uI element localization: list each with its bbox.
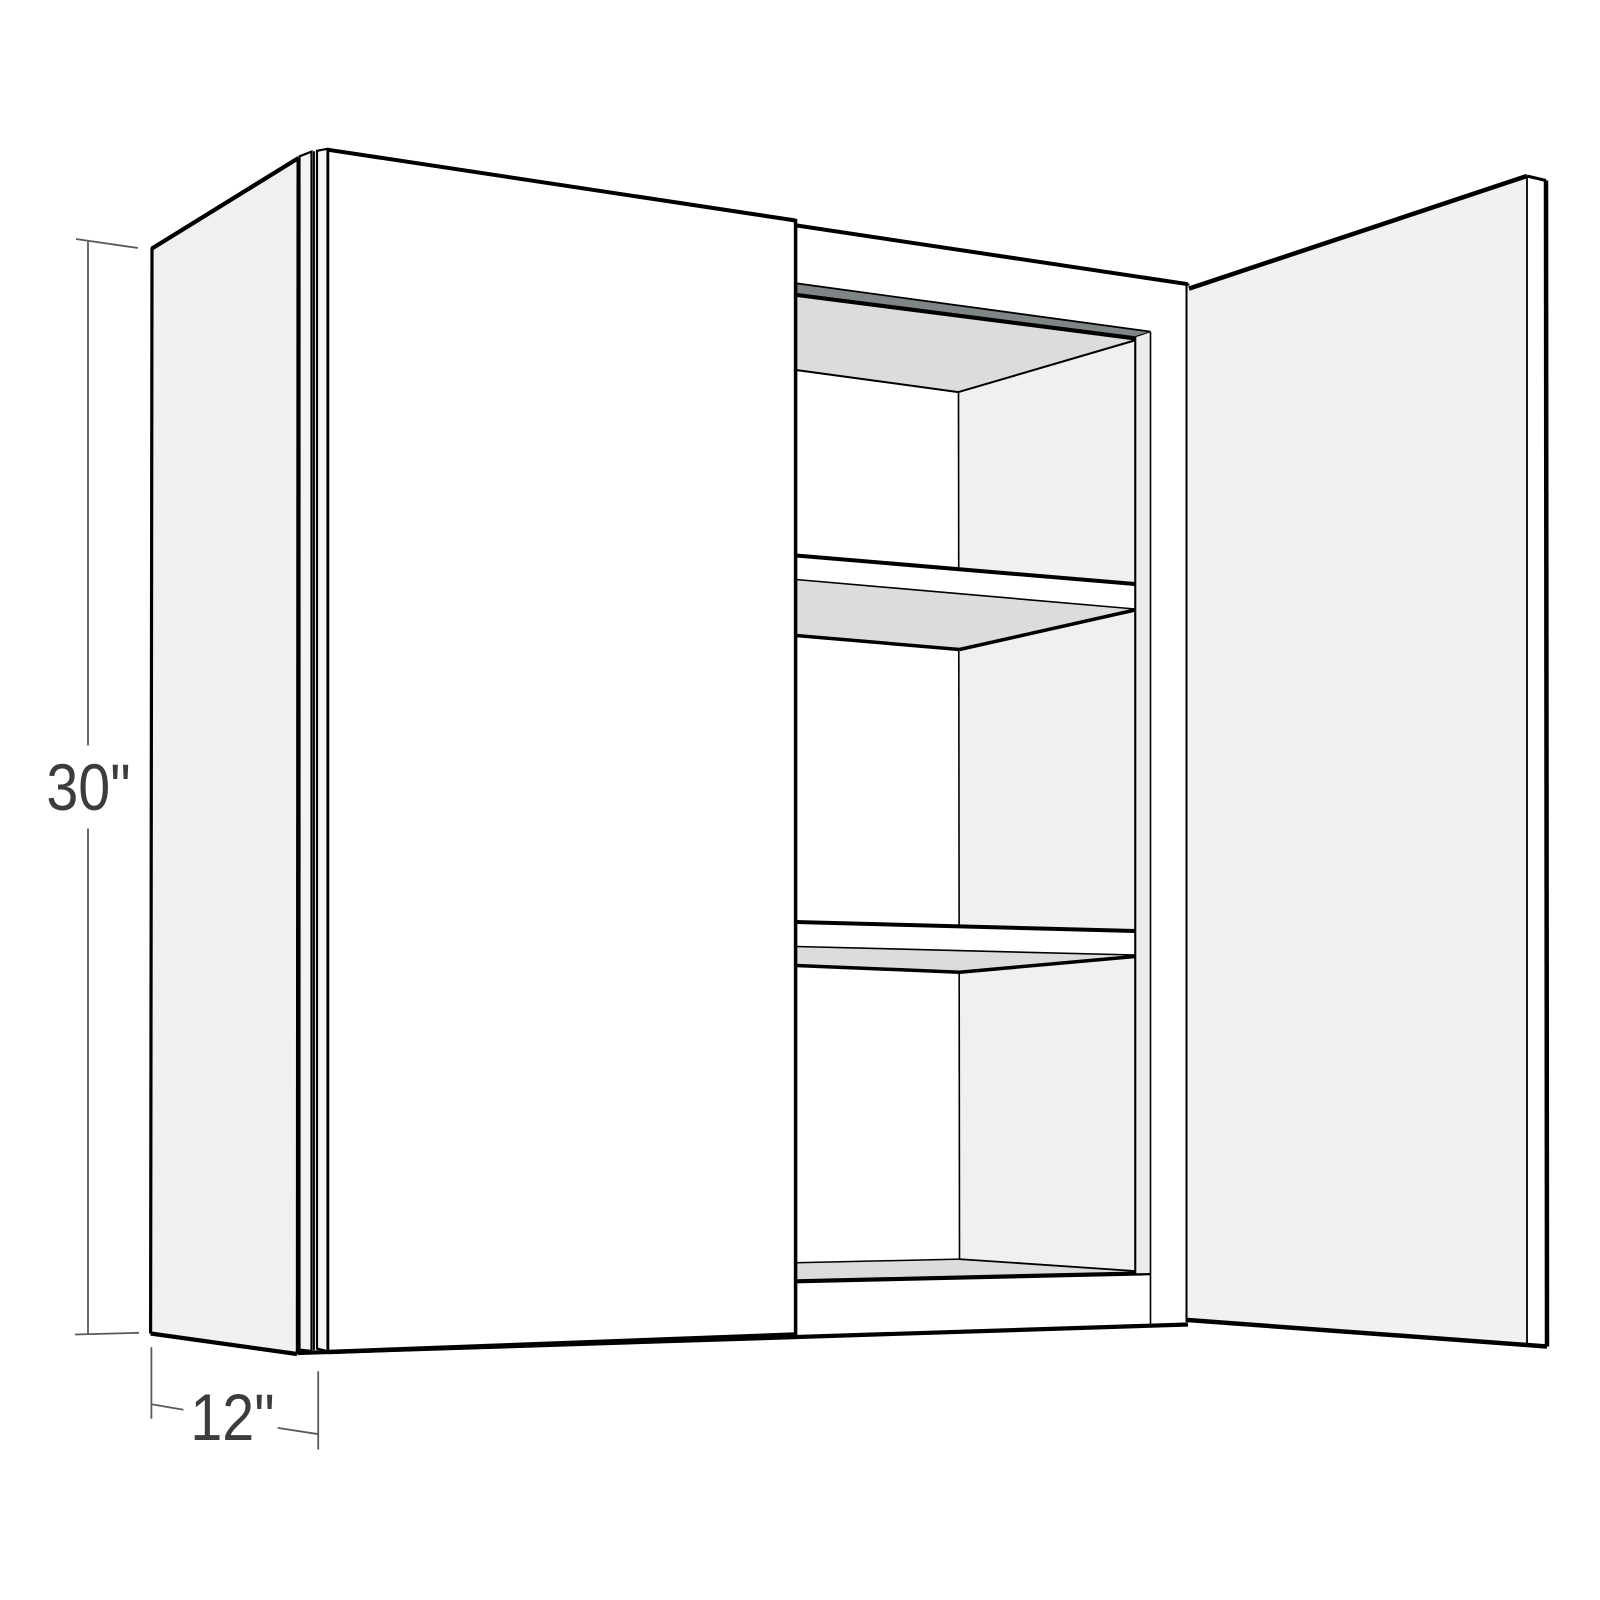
- svg-text:12": 12": [190, 1381, 274, 1455]
- svg-text:30": 30": [46, 751, 130, 825]
